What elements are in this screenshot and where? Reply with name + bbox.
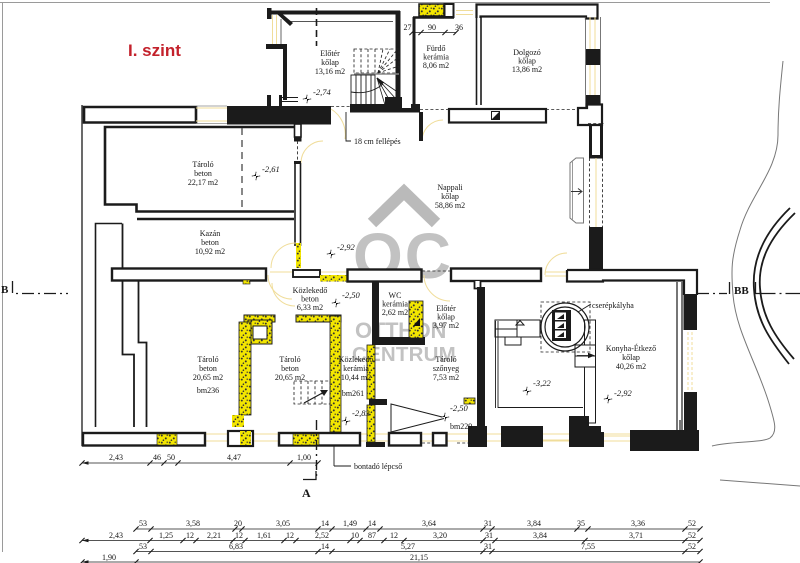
svg-text:1,25: 1,25: [159, 531, 173, 540]
svg-text:bm261: bm261: [342, 389, 364, 398]
svg-text:kőlap: kőlap: [622, 353, 640, 362]
svg-text:BB: BB: [734, 285, 749, 297]
svg-text:3,36: 3,36: [631, 519, 645, 528]
svg-text:40,26 m2: 40,26 m2: [616, 362, 646, 371]
svg-text:10,92 m2: 10,92 m2: [195, 247, 225, 256]
svg-text:-2,50: -2,50: [342, 290, 360, 300]
svg-text:beton: beton: [194, 169, 212, 178]
svg-text:12: 12: [286, 531, 294, 540]
svg-text:bm229: bm229: [450, 422, 472, 431]
svg-text:21,15: 21,15: [410, 553, 428, 562]
svg-text:7,53 m2: 7,53 m2: [433, 373, 459, 382]
svg-text:B: B: [1, 284, 9, 296]
svg-text:52: 52: [688, 519, 696, 528]
svg-text:2,52: 2,52: [315, 531, 329, 540]
svg-text:-2,83: -2,83: [352, 408, 370, 418]
svg-text:3,97 m2: 3,97 m2: [433, 321, 459, 330]
svg-text:6,33 m2: 6,33 m2: [297, 303, 323, 312]
svg-text:beton: beton: [201, 238, 219, 247]
svg-text:6,83: 6,83: [229, 542, 243, 551]
svg-text:50: 50: [167, 453, 175, 462]
svg-text:1,61: 1,61: [257, 531, 271, 540]
svg-text:-3,22: -3,22: [533, 378, 551, 388]
svg-text:31: 31: [484, 519, 492, 528]
svg-text:Előtér: Előtér: [320, 49, 340, 58]
svg-text:Tároló: Tároló: [279, 355, 300, 364]
svg-text:4,47: 4,47: [227, 453, 241, 462]
svg-text:1,00: 1,00: [297, 453, 311, 462]
svg-text:10: 10: [351, 531, 359, 540]
svg-text:Közlekedő: Közlekedő: [339, 355, 374, 364]
svg-text:-2,61: -2,61: [262, 164, 280, 174]
svg-text:3,71: 3,71: [629, 531, 643, 540]
svg-text:58,86 m2: 58,86 m2: [435, 201, 465, 210]
svg-text:beton: beton: [199, 364, 217, 373]
svg-text:5,27: 5,27: [401, 542, 415, 551]
svg-text:kőlap: kőlap: [321, 58, 339, 67]
svg-text:52: 52: [688, 531, 696, 540]
svg-text:cserépkályha: cserépkályha: [592, 301, 634, 310]
svg-text:Tároló: Tároló: [197, 355, 218, 364]
svg-text:bm236: bm236: [197, 386, 219, 395]
svg-text:14: 14: [368, 519, 376, 528]
svg-text:3,84: 3,84: [527, 519, 541, 528]
svg-text:Konyha-Étkező: Konyha-Étkező: [606, 343, 656, 353]
svg-text:3,20: 3,20: [433, 531, 447, 540]
svg-text:27: 27: [404, 23, 412, 32]
svg-text:2,43: 2,43: [109, 531, 123, 540]
svg-text:10,44 m2: 10,44 m2: [341, 373, 371, 382]
svg-text:12: 12: [390, 531, 398, 540]
svg-text:2,43: 2,43: [109, 453, 123, 462]
svg-text:87: 87: [368, 531, 376, 540]
svg-text:A: A: [302, 486, 311, 500]
svg-text:31: 31: [484, 542, 492, 551]
svg-text:Kazán: Kazán: [200, 229, 220, 238]
svg-text:46: 46: [153, 453, 161, 462]
svg-text:3,84: 3,84: [533, 531, 547, 540]
svg-text:31: 31: [485, 531, 493, 540]
svg-text:beton: beton: [281, 364, 299, 373]
svg-text:kőlap: kőlap: [441, 192, 459, 201]
svg-text:Tároló: Tároló: [435, 355, 456, 364]
svg-text:13,86 m2: 13,86 m2: [512, 65, 542, 74]
svg-text:12: 12: [186, 531, 194, 540]
svg-text:3,58: 3,58: [186, 519, 200, 528]
svg-text:2,21: 2,21: [207, 531, 221, 540]
svg-text:22,17 m2: 22,17 m2: [188, 178, 218, 187]
svg-text:12: 12: [235, 531, 243, 540]
svg-text:20,65 m2: 20,65 m2: [275, 373, 305, 382]
svg-text:35: 35: [577, 519, 585, 528]
svg-text:I. szint: I. szint: [128, 41, 181, 60]
svg-text:8,06 m2: 8,06 m2: [423, 61, 449, 70]
svg-text:3,64: 3,64: [422, 519, 436, 528]
svg-text:Nappali: Nappali: [437, 183, 463, 192]
svg-text:szőnyeg: szőnyeg: [433, 364, 459, 373]
svg-text:14: 14: [321, 519, 329, 528]
svg-text:3,05: 3,05: [276, 519, 290, 528]
svg-text:1,49: 1,49: [343, 519, 357, 528]
svg-text:18 cm fellépés: 18 cm fellépés: [354, 137, 401, 146]
svg-text:-2,74: -2,74: [313, 87, 331, 97]
svg-text:2,62 m2: 2,62 m2: [382, 308, 408, 317]
svg-text:13,16 m2: 13,16 m2: [315, 67, 345, 76]
svg-text:90: 90: [428, 23, 436, 32]
svg-text:53: 53: [139, 519, 147, 528]
svg-text:20,65 m2: 20,65 m2: [193, 373, 223, 382]
svg-text:53: 53: [139, 542, 147, 551]
svg-text:7,55: 7,55: [581, 542, 595, 551]
svg-text:-2,92: -2,92: [337, 242, 355, 252]
svg-text:kerámia: kerámia: [343, 364, 369, 373]
svg-text:36: 36: [455, 23, 463, 32]
svg-text:20: 20: [234, 519, 242, 528]
svg-text:52: 52: [688, 542, 696, 551]
svg-text:1,90: 1,90: [102, 553, 116, 562]
svg-text:-2,92: -2,92: [614, 388, 632, 398]
svg-text:-2,50: -2,50: [450, 403, 468, 413]
svg-text:Tároló: Tároló: [192, 160, 213, 169]
svg-text:bontadó lépcső: bontadó lépcső: [354, 462, 402, 471]
svg-text:14: 14: [321, 542, 329, 551]
